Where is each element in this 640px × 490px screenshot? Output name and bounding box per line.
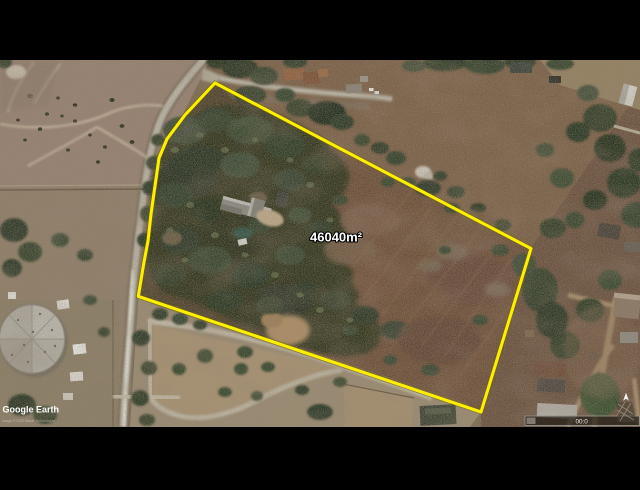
svg-text:46040m²: 46040m² xyxy=(310,230,363,245)
svg-text:00:0: 00:0 xyxy=(576,418,589,425)
svg-text:Google Earth: Google Earth xyxy=(3,405,60,415)
svg-text:Image © 2022 Maxar Technologie: Image © 2022 Maxar Technologies xyxy=(3,419,56,423)
